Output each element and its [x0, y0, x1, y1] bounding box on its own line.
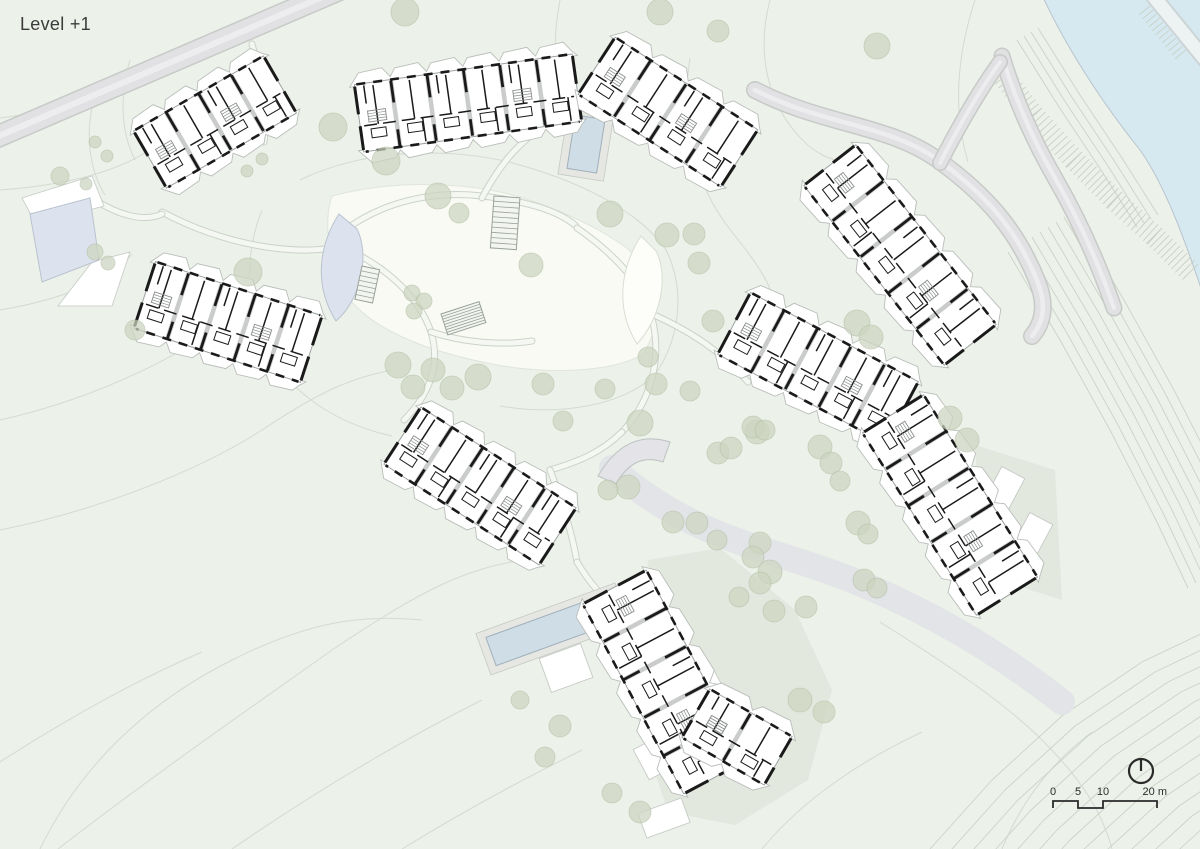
tree-icon [241, 165, 253, 177]
tree-icon [391, 0, 419, 26]
tree-icon [125, 320, 145, 340]
tree-icon [729, 587, 749, 607]
scale-label: 0 [1050, 786, 1056, 798]
tree-icon [955, 428, 979, 452]
tree-icon [465, 364, 491, 390]
tree-icon [655, 223, 679, 247]
drawing-title: Level +1 [20, 14, 91, 35]
tree-icon [372, 147, 400, 175]
tree-icon [858, 524, 878, 544]
tree-icon [864, 33, 890, 59]
tree-icon [859, 325, 883, 349]
site-plan-sheet: 051020 m Level +1 [0, 0, 1200, 849]
tree-icon [720, 437, 742, 459]
tree-icon [595, 379, 615, 399]
tree-icon [519, 253, 543, 277]
tree-icon [707, 20, 729, 42]
tree-icon [89, 136, 101, 148]
tree-icon [627, 410, 653, 436]
tree-icon [549, 715, 571, 737]
tree-icon [813, 701, 835, 723]
tree-icon [256, 153, 268, 165]
tree-icon [51, 167, 69, 185]
tree-icon [662, 511, 684, 533]
tree-icon [830, 471, 850, 491]
tree-icon [702, 310, 724, 332]
tree-icon [553, 411, 573, 431]
tree-icon [101, 150, 113, 162]
tree-icon [688, 252, 710, 274]
tree-icon [645, 373, 667, 395]
tree-icon [749, 572, 771, 594]
tree-icon [385, 352, 411, 378]
tree-icon [680, 381, 700, 401]
tree-icon [788, 688, 812, 712]
tree-icon [535, 747, 555, 767]
tree-icon [795, 596, 817, 618]
tree-icon [755, 420, 775, 440]
tree-icon [597, 201, 623, 227]
tree-icon [629, 801, 651, 823]
tree-icon [234, 258, 262, 286]
tree-icon [683, 223, 705, 245]
tree-icon [511, 691, 529, 709]
tree-icon [319, 113, 347, 141]
tree-icon [598, 480, 618, 500]
tree-icon [440, 376, 464, 400]
tree-icon [401, 375, 425, 399]
tree-icon [686, 512, 708, 534]
scale-label: 5 [1075, 786, 1081, 798]
tree-icon [449, 203, 469, 223]
tree-icon [616, 475, 640, 499]
site-plan-drawing: 051020 m [0, 0, 1200, 849]
tree-icon [87, 244, 103, 260]
tree-icon [647, 0, 673, 25]
tree-icon [638, 347, 658, 367]
scale-label: 20 m [1143, 786, 1167, 798]
tree-icon [938, 406, 962, 430]
tree-icon [602, 783, 622, 803]
tree-icon [763, 600, 785, 622]
tree-icon [532, 373, 554, 395]
tree-icon [101, 256, 115, 270]
stair-group [490, 196, 520, 250]
tree-icon [406, 303, 422, 319]
tree-icon [80, 178, 92, 190]
tree-icon [707, 530, 727, 550]
tree-icon [421, 358, 445, 382]
scale-label: 10 [1097, 786, 1109, 798]
tree-icon [425, 183, 451, 209]
tree-icon [867, 578, 887, 598]
